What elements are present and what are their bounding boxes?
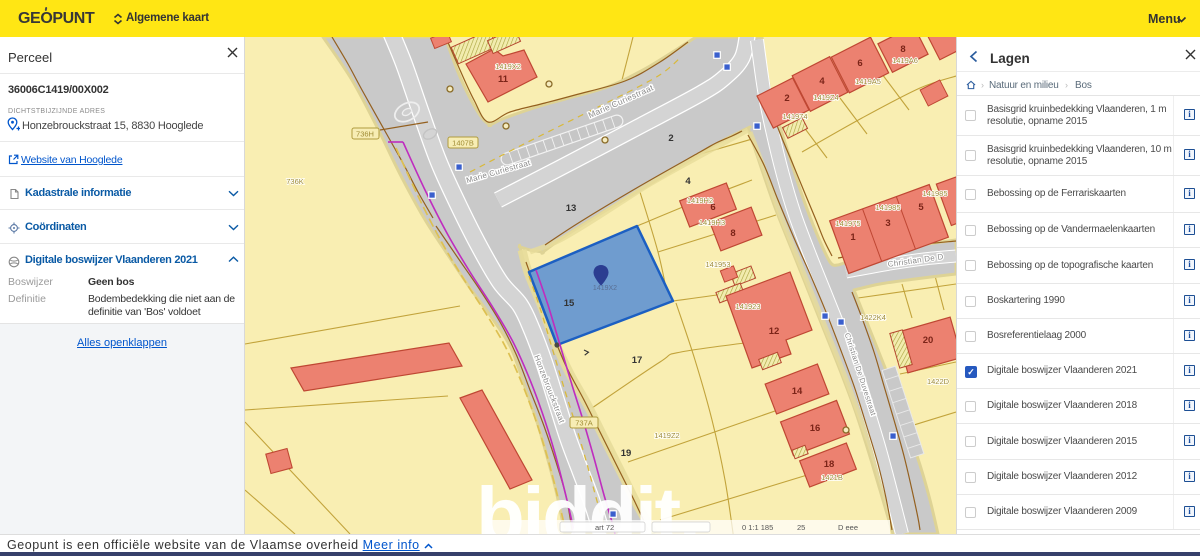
svg-text:2: 2 — [668, 133, 673, 144]
svg-text:3: 3 — [885, 218, 890, 229]
svg-text:1419X2: 1419X2 — [495, 62, 521, 71]
svg-text:12: 12 — [769, 326, 780, 337]
svg-text:8: 8 — [900, 44, 905, 55]
svg-text:19: 19 — [621, 448, 632, 459]
svg-text:14: 14 — [792, 386, 803, 397]
svg-text:6: 6 — [857, 58, 862, 69]
svg-text:141953: 141953 — [705, 260, 730, 269]
svg-text:1419Z2: 1419Z2 — [654, 431, 679, 440]
svg-text:2: 2 — [784, 93, 789, 104]
svg-text:4: 4 — [819, 76, 825, 87]
svg-text:17: 17 — [632, 355, 643, 366]
svg-text:13: 13 — [566, 203, 577, 214]
svg-text:11: 11 — [498, 74, 509, 85]
svg-text:1422D: 1422D — [927, 377, 950, 386]
svg-text:18: 18 — [824, 459, 835, 470]
svg-text:4: 4 — [685, 176, 691, 187]
svg-text:1421B: 1421B — [821, 473, 843, 482]
svg-text:16: 16 — [810, 423, 821, 434]
svg-text:1419A5: 1419A5 — [855, 77, 881, 86]
svg-text:141974: 141974 — [782, 112, 807, 121]
svg-text:1419Z4: 1419Z4 — [813, 93, 838, 102]
svg-text:20: 20 — [923, 335, 934, 346]
svg-text:0 1:1 185: 0 1:1 185 — [742, 523, 773, 532]
svg-text:1419X2: 1419X2 — [593, 285, 617, 292]
svg-text:737A: 737A — [575, 419, 593, 428]
svg-text:15: 15 — [564, 298, 575, 309]
svg-text:141923: 141923 — [735, 302, 760, 311]
svg-text:1422K4: 1422K4 — [860, 313, 886, 322]
svg-text:1419H3: 1419H3 — [699, 218, 725, 227]
svg-text:art 72: art 72 — [595, 523, 614, 532]
svg-text:1: 1 — [850, 232, 856, 243]
svg-text:8: 8 — [730, 228, 735, 239]
svg-text:5: 5 — [918, 202, 924, 213]
svg-text:1419A6: 1419A6 — [892, 56, 918, 65]
svg-text:141985: 141985 — [875, 203, 900, 212]
svg-text:25: 25 — [797, 523, 805, 532]
svg-text:736K: 736K — [286, 177, 304, 186]
svg-text:141975: 141975 — [835, 219, 860, 228]
svg-text:1407B: 1407B — [452, 139, 474, 148]
svg-text:D eee: D eee — [838, 523, 858, 532]
svg-text:1419H2: 1419H2 — [687, 196, 713, 205]
svg-text:736H: 736H — [356, 130, 374, 139]
svg-text:141985: 141985 — [922, 189, 947, 198]
